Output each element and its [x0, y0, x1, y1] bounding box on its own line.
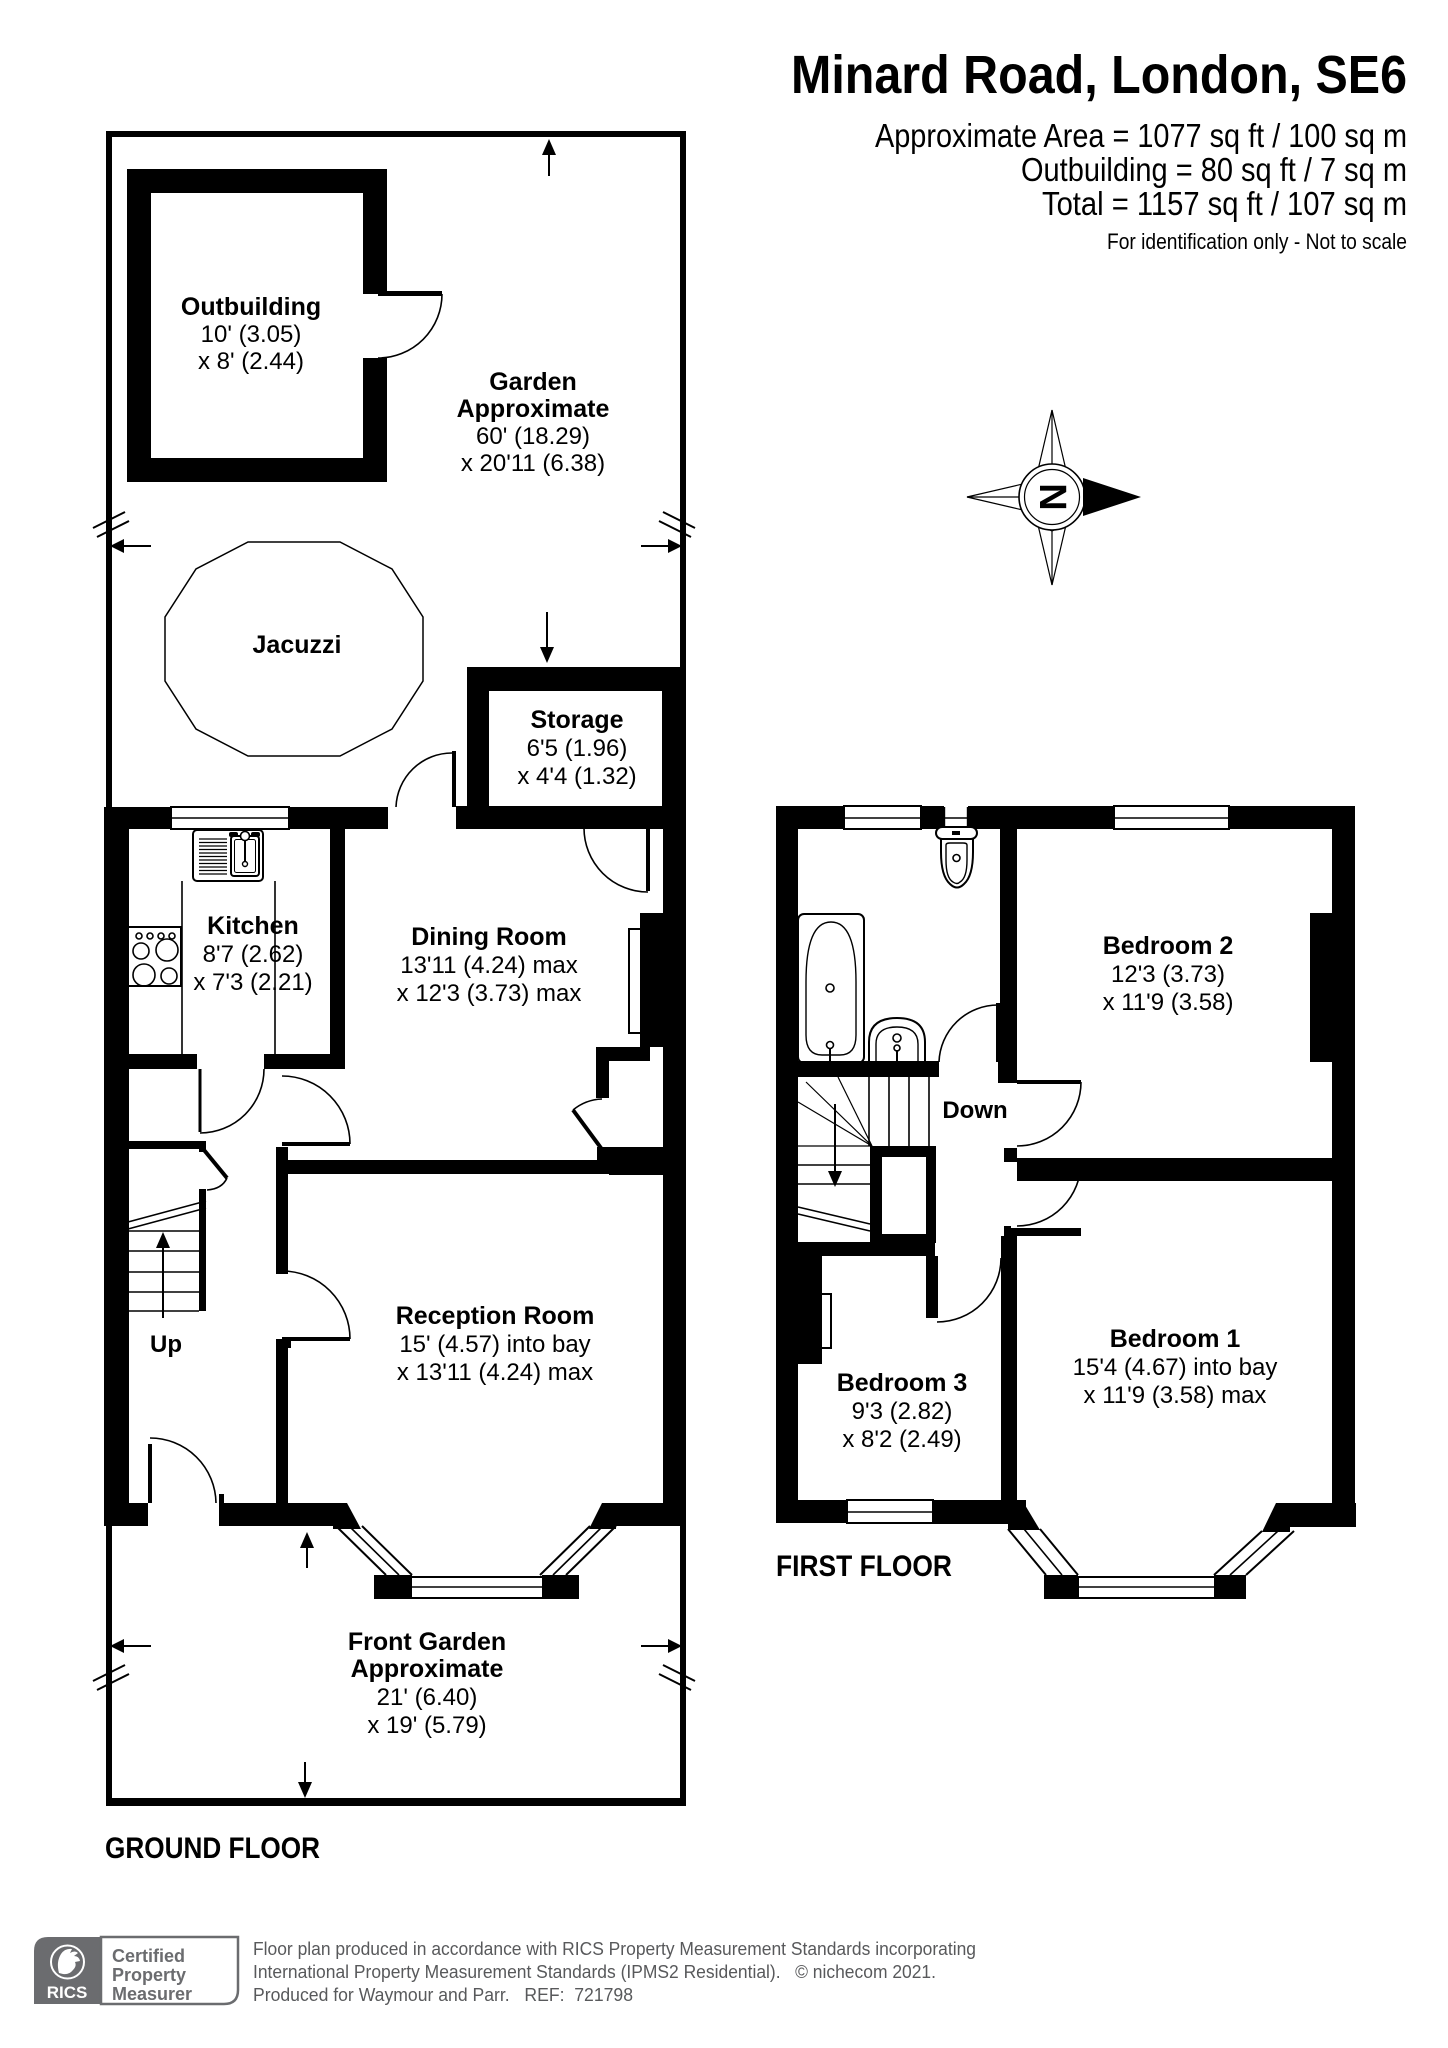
svg-text:Approximate Area = 1077 sq ft: Approximate Area = 1077 sq ft / 100 sq m [875, 117, 1407, 154]
svg-text:x 8'2 (2.49): x 8'2 (2.49) [842, 1426, 961, 1453]
svg-text:Property: Property [112, 1965, 186, 1985]
svg-text:Bedroom 3: Bedroom 3 [837, 1369, 968, 1397]
svg-text:Produced for Waymour and Parr.: Produced for Waymour and Parr. REF: 7217… [253, 1985, 633, 2005]
svg-text:Floor plan produced in accorda: Floor plan produced in accordance with R… [253, 1939, 976, 1959]
svg-text:RICS: RICS [47, 1983, 88, 2002]
svg-text:Up: Up [150, 1331, 182, 1358]
svg-text:Reception Room: Reception Room [396, 1302, 595, 1330]
svg-text:Measurer: Measurer [112, 1984, 192, 2004]
svg-text:x 19' (5.79): x 19' (5.79) [367, 1712, 486, 1739]
svg-text:x 13'11 (4.24) max: x 13'11 (4.24) max [397, 1359, 593, 1386]
svg-text:10' (3.05): 10' (3.05) [201, 321, 302, 348]
svg-text:9'3 (2.82): 9'3 (2.82) [852, 1398, 953, 1425]
svg-text:International Property Measure: International Property Measurement Stand… [253, 1962, 936, 1982]
svg-text:Outbuilding: Outbuilding [181, 293, 321, 321]
svg-text:15' (4.57) into bay: 15' (4.57) into bay [399, 1331, 590, 1358]
svg-text:x 20'11 (6.38): x 20'11 (6.38) [461, 450, 605, 477]
svg-text:Bedroom 2: Bedroom 2 [1103, 932, 1234, 960]
svg-text:8'7 (2.62): 8'7 (2.62) [203, 941, 304, 968]
svg-text:Approximate: Approximate [457, 395, 610, 423]
svg-text:12'3 (3.73): 12'3 (3.73) [1111, 961, 1225, 988]
svg-text:13'11 (4.24) max: 13'11 (4.24) max [400, 952, 578, 979]
svg-text:15'4 (4.67) into bay: 15'4 (4.67) into bay [1073, 1354, 1278, 1381]
svg-text:Dining Room: Dining Room [411, 923, 567, 951]
svg-text:Total = 1157 sq ft / 107 sq m: Total = 1157 sq ft / 107 sq m [1042, 185, 1407, 222]
svg-text:x 11'9 (3.58): x 11'9 (3.58) [1103, 989, 1234, 1016]
svg-text:Approximate: Approximate [351, 1655, 504, 1683]
svg-text:For identification only - Not: For identification only - Not to scale [1107, 229, 1407, 254]
svg-text:x 4'4 (1.32): x 4'4 (1.32) [517, 763, 636, 790]
svg-text:Certified: Certified [112, 1946, 185, 1966]
svg-text:x 8' (2.44): x 8' (2.44) [198, 348, 304, 375]
svg-text:x 11'9 (3.58) max: x 11'9 (3.58) max [1084, 1382, 1267, 1409]
svg-text:Bedroom 1: Bedroom 1 [1110, 1325, 1241, 1353]
svg-text:x 12'3 (3.73) max: x 12'3 (3.73) max [397, 980, 582, 1007]
svg-text:Outbuilding = 80 sq ft / 7 sq: Outbuilding = 80 sq ft / 7 sq m [1021, 151, 1407, 188]
svg-text:Storage: Storage [530, 706, 623, 734]
svg-text:Kitchen: Kitchen [207, 912, 299, 940]
svg-text:Jacuzzi: Jacuzzi [253, 631, 342, 659]
svg-text:Garden: Garden [489, 368, 577, 396]
svg-text:60' (18.29): 60' (18.29) [476, 423, 590, 450]
svg-text:GROUND FLOOR: GROUND FLOOR [105, 1832, 320, 1865]
svg-text:21' (6.40): 21' (6.40) [377, 1684, 478, 1711]
svg-text:Front Garden: Front Garden [348, 1628, 506, 1656]
svg-text:Minard Road, London, SE6: Minard Road, London, SE6 [791, 45, 1407, 105]
svg-text:FIRST FLOOR: FIRST FLOOR [776, 1550, 952, 1583]
svg-text:6'5 (1.96): 6'5 (1.96) [527, 735, 628, 762]
svg-text:N: N [1031, 483, 1073, 510]
svg-text:Down: Down [942, 1097, 1007, 1124]
svg-text:x 7'3 (2.21): x 7'3 (2.21) [193, 969, 312, 996]
